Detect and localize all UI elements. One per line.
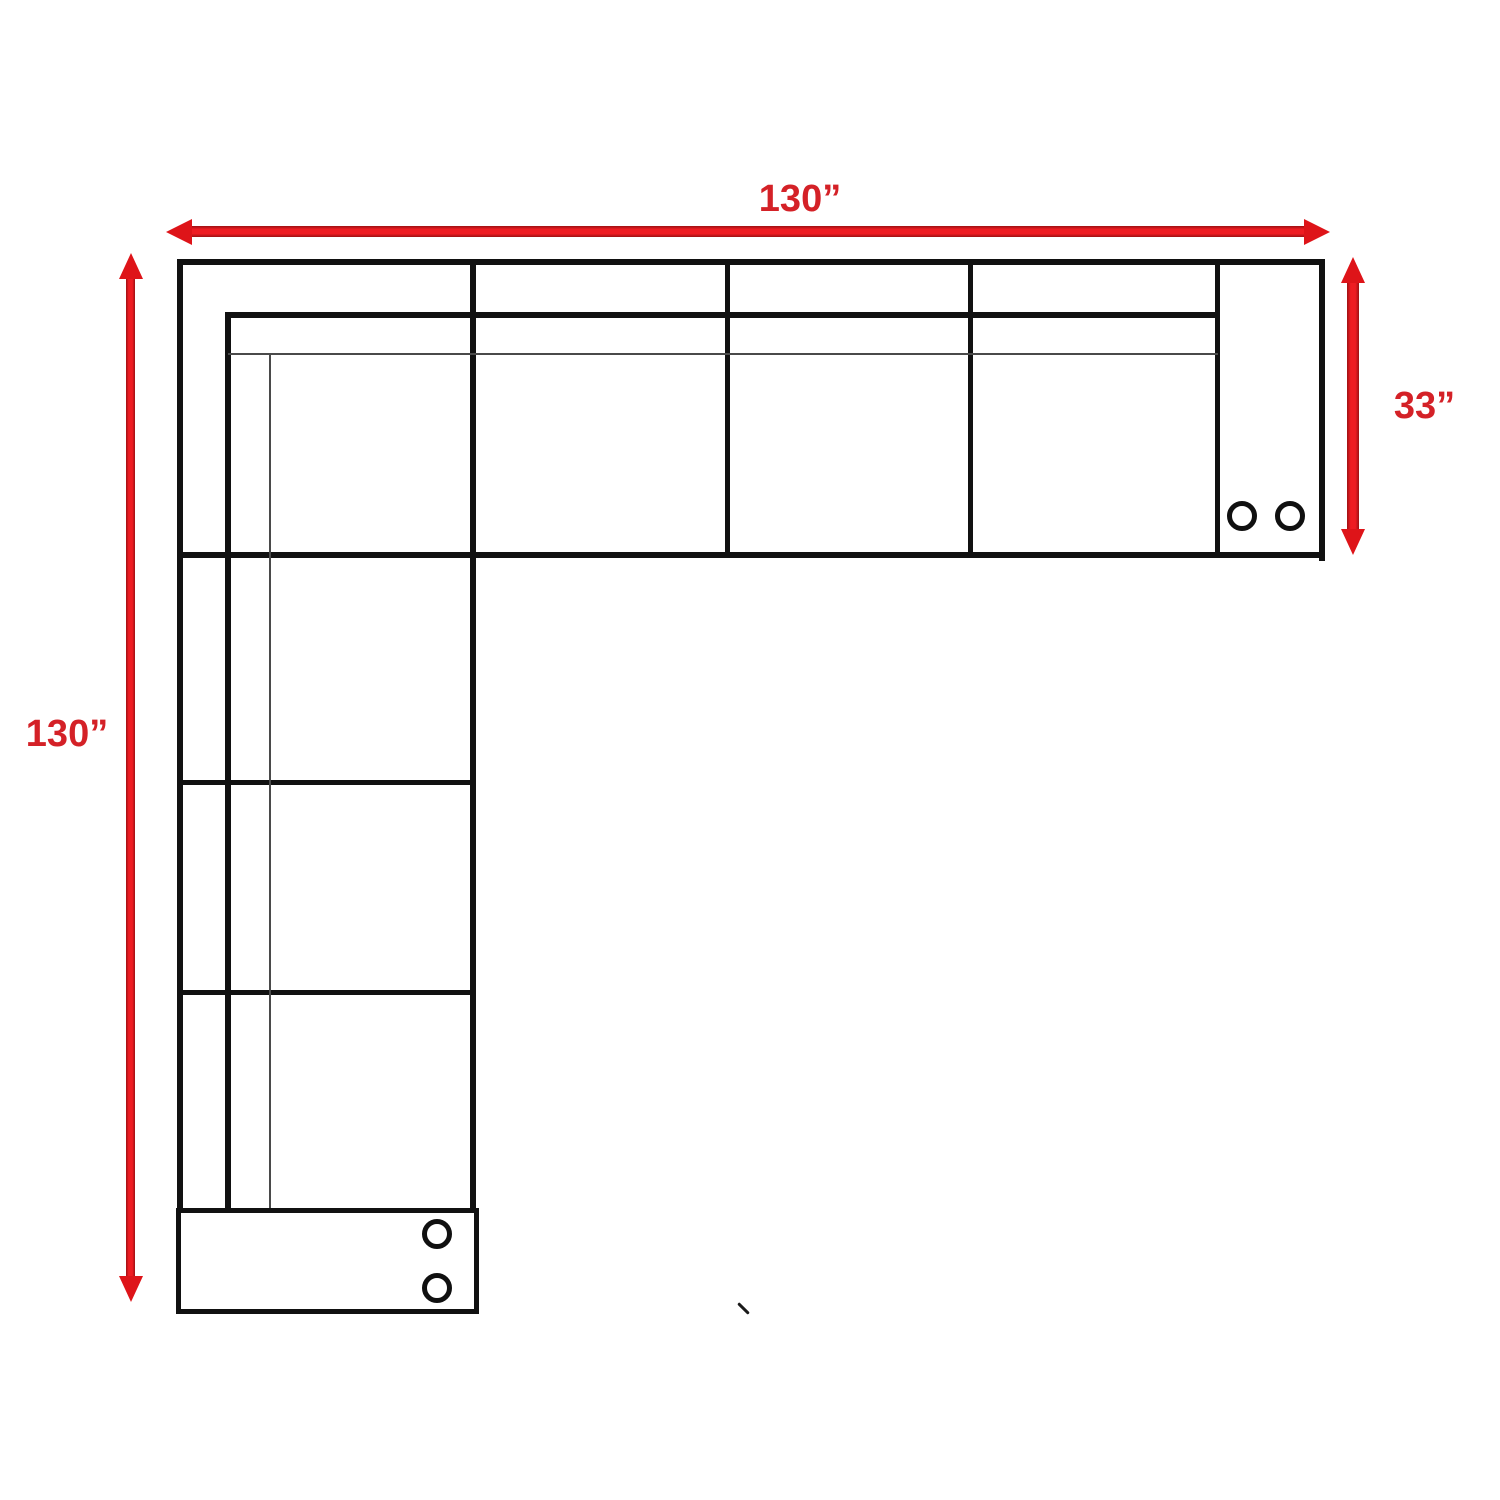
seat-divider-horizontal-1: [180, 780, 473, 785]
seat-divider-vertical-2: [968, 262, 973, 555]
right-dimension-arrow-bar: [1347, 281, 1359, 531]
left-arm-right-edge: [470, 259, 476, 1216]
seat-edge-line-top: [228, 353, 1218, 355]
top-dimension-label: 130”: [715, 177, 885, 221]
left-dimension-label: 130”: [0, 712, 134, 756]
arrow-up-head-icon: [1341, 257, 1365, 283]
stray-tick-mark: [737, 1302, 750, 1315]
arrow-down-head-icon: [1341, 529, 1365, 555]
backrest-line-top: [225, 312, 1220, 318]
seat-edge-line-left: [269, 353, 271, 1211]
top-dimension-arrow-bar: [190, 226, 1306, 237]
left-dimension-arrow-bar: [126, 277, 135, 1278]
arrow-down-head-icon: [119, 1276, 143, 1302]
seat-divider-vertical-1: [725, 262, 730, 555]
cupholder-circle-icon: [1275, 501, 1305, 531]
cupholder-circle-icon: [1227, 501, 1257, 531]
sofa-left-edge: [177, 259, 183, 1216]
right-dimension-label: 33”: [1352, 384, 1497, 428]
cupholder-circle-icon: [422, 1273, 452, 1303]
arrow-right-head-icon: [1304, 219, 1330, 245]
backrest-line-left: [225, 312, 231, 1213]
seat-divider-horizontal-2: [180, 990, 473, 995]
arrow-up-head-icon: [119, 253, 143, 279]
sofa-right-edge: [1319, 259, 1325, 561]
right-console-divider: [1215, 262, 1220, 555]
sectional-sofa-dimension-diagram: 130” 130” 33”: [0, 0, 1500, 1500]
sofa-top-edge: [177, 259, 1325, 265]
top-arm-bottom-edge: [177, 552, 1325, 558]
cupholder-circle-icon: [422, 1219, 452, 1249]
arrow-left-head-icon: [166, 219, 192, 245]
